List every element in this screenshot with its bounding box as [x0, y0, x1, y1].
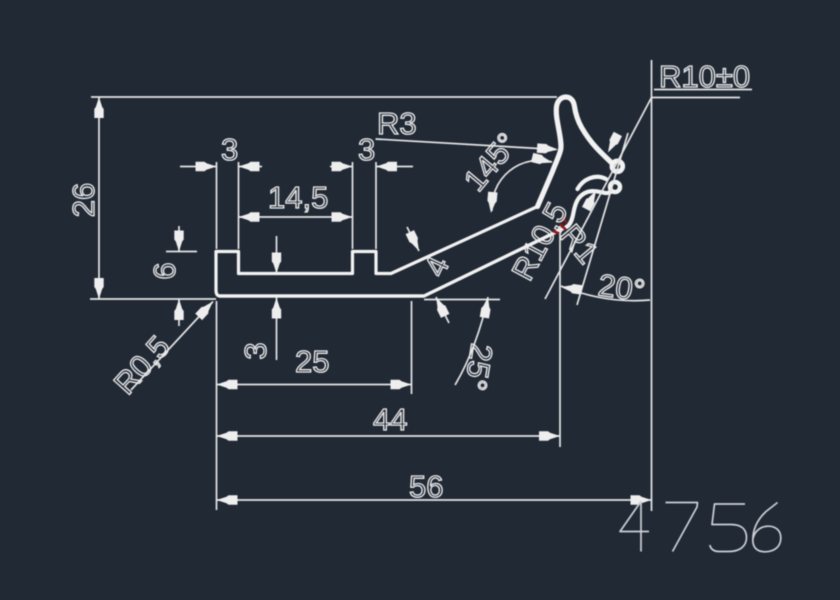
svg-text:R10±0: R10±0	[659, 59, 750, 94]
svg-text:20°: 20°	[596, 267, 647, 308]
svg-text:25: 25	[295, 344, 329, 379]
svg-text:26: 26	[66, 183, 101, 217]
svg-text:25°: 25°	[458, 341, 500, 393]
svg-text:R3: R3	[377, 106, 417, 141]
svg-text:3: 3	[358, 132, 375, 167]
svg-text:44: 44	[373, 402, 407, 437]
svg-text:14,5: 14,5	[268, 180, 328, 215]
svg-text:3: 3	[238, 342, 273, 359]
svg-text:6: 6	[147, 262, 182, 279]
svg-text:56: 56	[409, 469, 443, 504]
svg-text:3: 3	[221, 132, 238, 167]
